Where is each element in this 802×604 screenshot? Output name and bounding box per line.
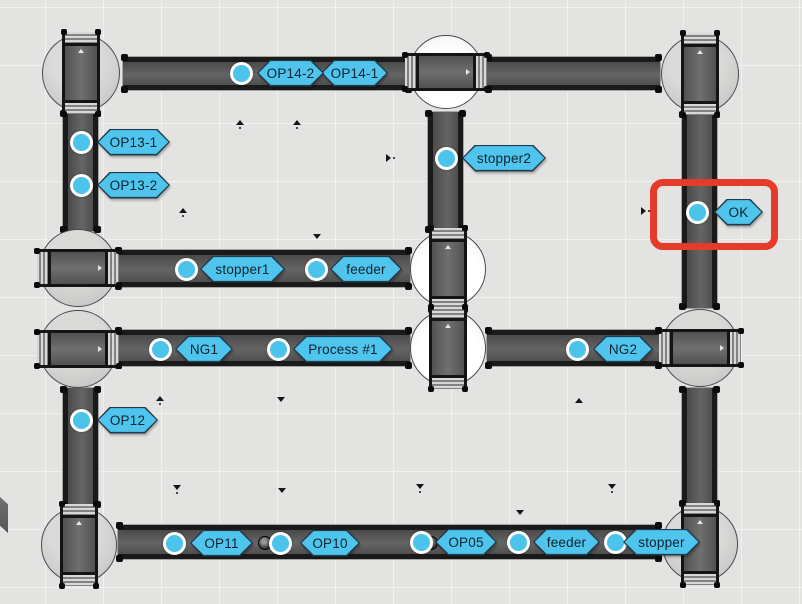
tag-label: OP14-2 <box>267 66 315 81</box>
direction-marker-arrow <box>236 120 244 125</box>
roller <box>429 307 467 318</box>
sensor-op14[interactable] <box>230 62 253 85</box>
sensor-op10[interactable] <box>269 532 292 555</box>
roller <box>429 228 467 239</box>
tag-body: OP05 <box>437 530 496 554</box>
conveyor-foot <box>679 303 686 310</box>
tag-process-1[interactable]: Process #1 <box>293 336 393 363</box>
roller <box>681 574 719 585</box>
sensor-op05[interactable] <box>410 531 433 554</box>
sensor-feeder-mid[interactable] <box>305 258 328 281</box>
turntable-center-lower[interactable] <box>410 310 486 386</box>
roller <box>37 249 48 287</box>
tag-stopper-bottom[interactable]: stopper <box>623 529 700 556</box>
direction-marker <box>386 154 395 162</box>
conveyor-foot <box>405 283 412 290</box>
tag-label: stopper2 <box>477 151 531 166</box>
direction-marker-arrow <box>278 488 286 493</box>
direction-marker <box>278 488 286 493</box>
conveyor-mid-upper-belt[interactable] <box>428 112 463 231</box>
direction-marker <box>179 208 187 217</box>
tag-body: OP14-2 <box>259 61 323 85</box>
direction-marker-arrow <box>386 154 391 162</box>
turntable-left-row2[interactable] <box>39 229 117 307</box>
direction-marker <box>277 397 285 402</box>
tag-body: stopper2 <box>464 146 545 170</box>
conveyor-foot <box>459 110 466 117</box>
roller <box>659 329 670 367</box>
conveyor-foot <box>405 327 412 334</box>
turntable-segment <box>48 249 108 287</box>
tag-ng2[interactable]: NG2 <box>593 336 653 363</box>
tag-label: OP14-1 <box>331 66 379 81</box>
roller <box>730 329 741 367</box>
tag-label: OP12 <box>110 413 145 428</box>
sensor-op13-2[interactable] <box>70 174 93 197</box>
direction-marker-dot <box>296 127 298 129</box>
sensor-stopper2[interactable] <box>435 147 458 170</box>
conveyor-foot <box>713 303 720 310</box>
tag-label: stopper1 <box>215 262 269 277</box>
direction-marker <box>416 484 424 493</box>
roller <box>60 504 98 515</box>
sensor-process-1[interactable] <box>267 338 290 361</box>
tag-stopper2[interactable]: stopper2 <box>462 145 546 172</box>
selection-highlight-box <box>650 179 778 250</box>
direction-marker-arrow <box>641 207 646 215</box>
direction-marker-dot <box>176 492 178 494</box>
tag-op13-1[interactable]: OP13-1 <box>97 129 170 156</box>
direction-marker-arrow <box>516 510 524 515</box>
turntable-top-left[interactable] <box>42 34 120 112</box>
turntable-bottom-left[interactable] <box>41 507 117 583</box>
conveyor-foot <box>655 555 662 562</box>
direction-marker <box>313 234 321 239</box>
tag-label: OP05 <box>448 535 483 550</box>
turntable-segment <box>670 329 730 367</box>
tag-label: Process #1 <box>308 342 378 357</box>
turntable-top-middle[interactable] <box>409 35 483 109</box>
roller <box>681 33 719 44</box>
tag-op05[interactable]: OP05 <box>435 529 497 556</box>
tag-op10[interactable]: OP10 <box>300 530 360 557</box>
direction-marker-arrow <box>313 234 321 239</box>
direction-marker-dot <box>611 491 613 493</box>
tag-body: OP13-2 <box>99 173 169 197</box>
tag-feeder-bottom[interactable]: feeder <box>533 529 600 556</box>
direction-marker-arrow <box>156 396 164 401</box>
edge-object-fragment <box>0 497 8 533</box>
conveyor-foot <box>116 522 123 529</box>
conveyor-left-lower-belt[interactable] <box>63 388 98 506</box>
tag-ng1[interactable]: NG1 <box>175 336 233 363</box>
tag-label: OP13-2 <box>110 178 158 193</box>
tag-op14-1[interactable]: OP14-1 <box>321 60 388 87</box>
roller <box>62 103 100 114</box>
roller <box>429 378 467 389</box>
turntable-segment <box>429 318 467 378</box>
tag-label: OP11 <box>204 536 238 551</box>
tag-body: Process #1 <box>295 337 392 361</box>
conveyor-foot <box>655 54 662 61</box>
direction-marker-arrow <box>608 484 616 489</box>
direction-marker <box>608 484 616 493</box>
conveyor-foot <box>121 54 128 61</box>
direction-marker <box>516 510 524 515</box>
direction-marker <box>236 120 244 129</box>
tag-body: stopper <box>625 530 699 554</box>
turntable-right-row3[interactable] <box>661 309 739 387</box>
roller <box>681 503 719 514</box>
turntable-segment <box>429 239 467 299</box>
direction-marker-dot <box>239 127 241 129</box>
tag-label: feeder <box>547 535 586 550</box>
tag-body: NG2 <box>595 337 652 361</box>
conveyor-right-lower-belt[interactable] <box>682 388 717 505</box>
tag-body: feeder <box>535 530 599 554</box>
sensor-ng1[interactable] <box>149 338 172 361</box>
direction-marker-arrow <box>293 120 301 125</box>
conveyor-foot <box>679 386 686 393</box>
conveyor-left-upper-belt[interactable] <box>63 112 98 231</box>
sensor-op12[interactable] <box>70 409 93 432</box>
tag-label: OP10 <box>312 536 347 551</box>
roller <box>681 104 719 115</box>
direction-marker <box>156 396 164 405</box>
conveyor-top-right-belt[interactable] <box>487 57 660 90</box>
roller <box>37 330 48 368</box>
tag-label: NG1 <box>190 342 218 357</box>
direction-marker <box>293 120 301 129</box>
direction-marker-dot <box>419 491 421 493</box>
turntable-segment <box>416 53 476 91</box>
tag-body: OP10 <box>302 531 359 555</box>
sensor-ng2[interactable] <box>566 338 589 361</box>
tag-label: feeder <box>346 262 385 277</box>
tag-op11[interactable]: OP11 <box>190 530 253 557</box>
conveyor-foot <box>121 86 128 93</box>
tag-label: NG2 <box>609 342 637 357</box>
direction-marker <box>641 207 650 215</box>
tag-body: OP13-1 <box>99 130 169 154</box>
tag-op12[interactable]: OP12 <box>97 407 158 434</box>
turntable-segment <box>60 515 98 575</box>
direction-marker-arrow <box>179 208 187 213</box>
tag-op13-2[interactable]: OP13-2 <box>97 172 170 199</box>
tag-body: OP14-1 <box>323 61 387 85</box>
conveyor-foot <box>60 386 67 393</box>
roller <box>405 53 416 91</box>
direction-marker-dot <box>182 215 184 217</box>
tag-body: OP11 <box>192 531 252 555</box>
tag-label: OP13-1 <box>110 135 158 150</box>
tag-body: stopper1 <box>202 257 284 281</box>
conveyor-foot <box>713 386 720 393</box>
simulation-canvas: OP14-1OP14-2OP13-1OP13-2stopper2OKstoppe… <box>0 0 802 604</box>
sensor-stopper1[interactable] <box>175 258 198 281</box>
direction-marker <box>575 398 583 403</box>
sensor-op11[interactable] <box>163 532 186 555</box>
conveyor-foot <box>405 247 412 254</box>
tag-op14-2[interactable]: OP14-2 <box>257 60 324 87</box>
roller <box>62 32 100 43</box>
conveyor-foot <box>485 362 492 369</box>
conveyor-foot <box>655 86 662 93</box>
roller <box>108 249 119 287</box>
direction-marker-dot <box>159 403 161 405</box>
conveyor-foot <box>116 555 123 562</box>
turntable-left-row3[interactable] <box>39 310 117 388</box>
direction-marker-arrow <box>173 485 181 490</box>
turntable-segment <box>48 330 108 368</box>
conveyor-foot <box>485 327 492 334</box>
tag-label: stopper <box>638 535 684 550</box>
tag-stopper1[interactable]: stopper1 <box>200 256 285 283</box>
conveyor-foot <box>425 110 432 117</box>
direction-marker <box>173 485 181 494</box>
tag-body: feeder <box>332 257 401 281</box>
sensor-op13-1[interactable] <box>70 131 93 154</box>
direction-marker-arrow <box>416 484 424 489</box>
roller <box>108 330 119 368</box>
roller <box>60 575 98 586</box>
roller <box>476 53 487 91</box>
turntable-top-right[interactable] <box>661 35 739 113</box>
turntable-center-upper[interactable] <box>410 231 486 307</box>
tag-feeder-mid[interactable]: feeder <box>330 256 402 283</box>
conveyor-foot <box>94 386 101 393</box>
tag-body: OP12 <box>99 408 157 432</box>
conveyor-foot <box>405 362 412 369</box>
direction-marker-arrow <box>575 398 583 403</box>
turntable-segment <box>62 43 100 103</box>
direction-marker-arrow <box>277 397 285 402</box>
direction-marker-dot <box>393 157 395 159</box>
turntable-segment <box>681 44 719 104</box>
sensor-feeder-bottom[interactable] <box>507 531 530 554</box>
